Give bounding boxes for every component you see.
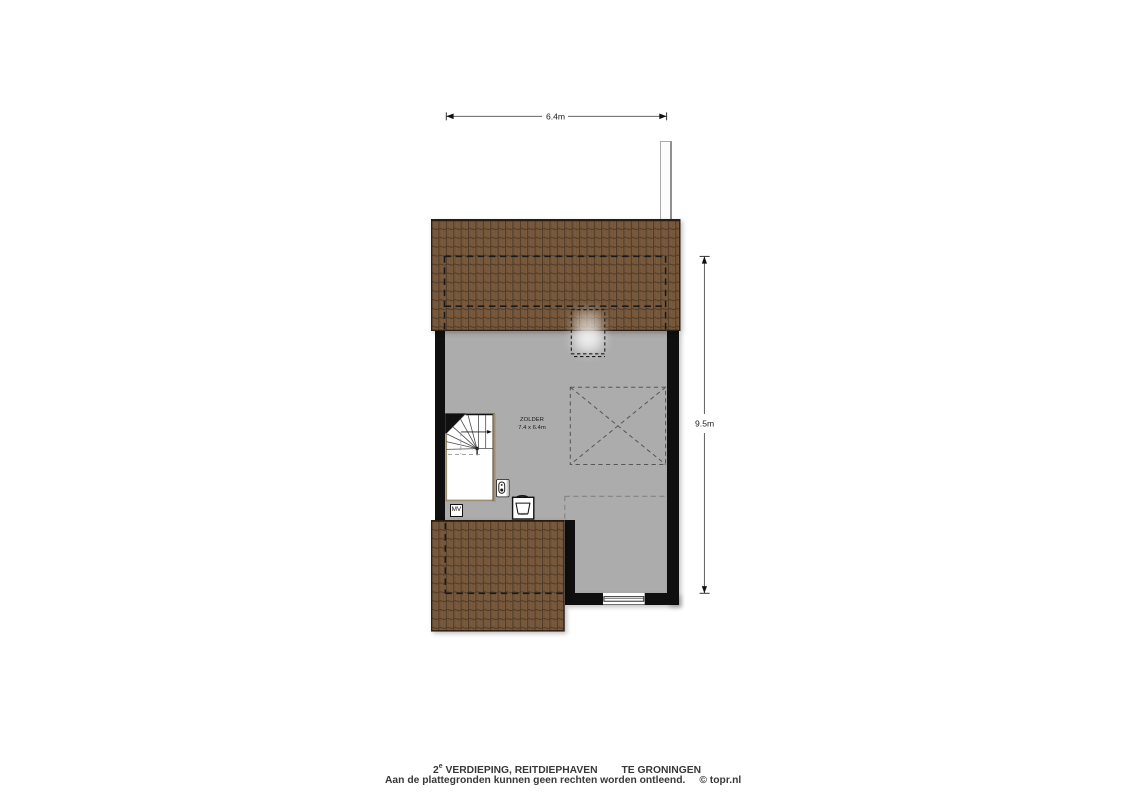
svg-text:9.5m: 9.5m [695, 418, 714, 428]
svg-text:6.4m: 6.4m [546, 112, 565, 122]
